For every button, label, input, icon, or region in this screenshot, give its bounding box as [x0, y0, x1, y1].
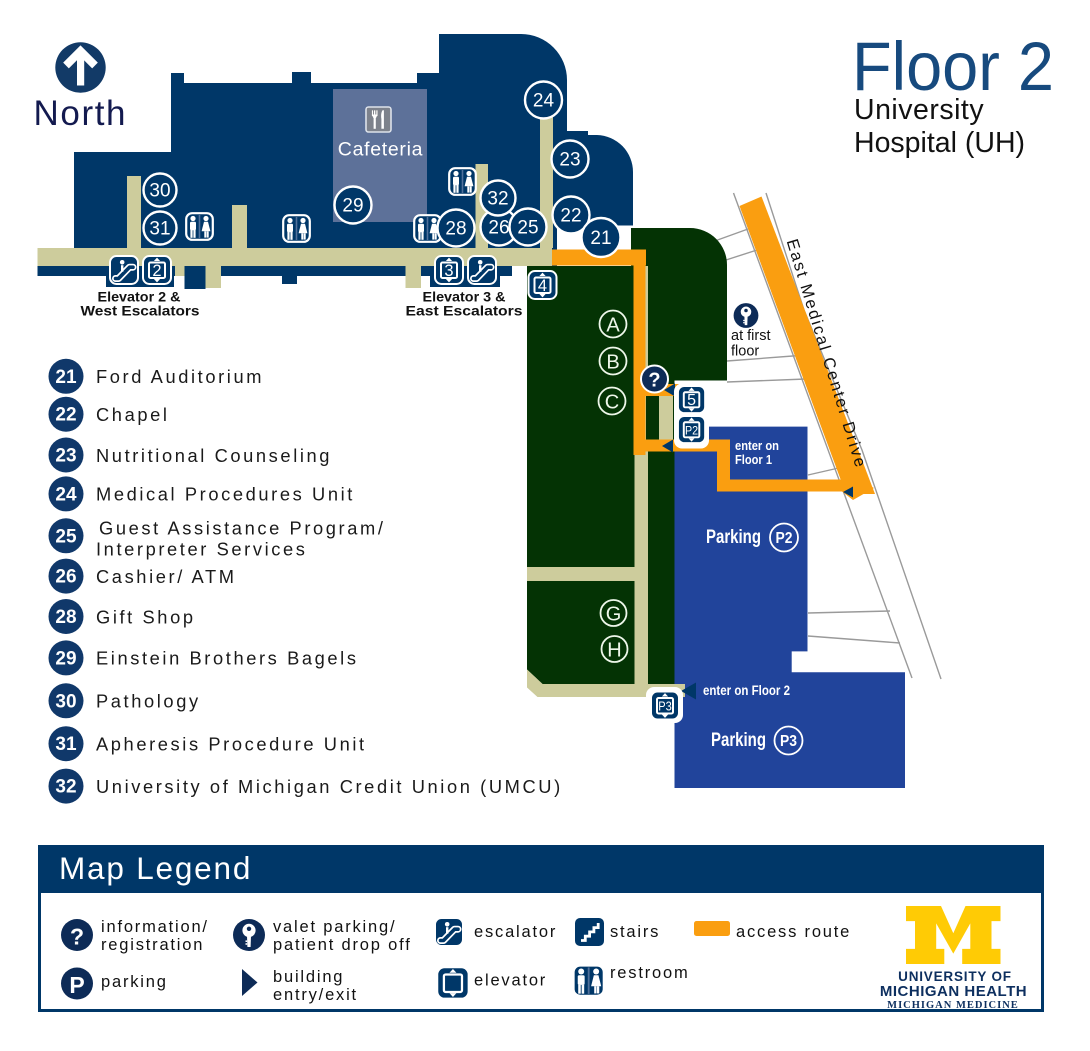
svg-text:30: 30	[149, 181, 170, 202]
svg-text:24: 24	[533, 91, 555, 112]
svg-text:26: 26	[488, 218, 509, 239]
svg-text:P3: P3	[780, 733, 797, 750]
svg-text:Cafeteria: Cafeteria	[338, 139, 423, 161]
svg-text:32: 32	[55, 777, 76, 798]
svg-text:Gift Shop: Gift Shop	[96, 606, 196, 627]
svg-text:24: 24	[55, 484, 77, 505]
svg-text:patient drop off: patient drop off	[273, 936, 412, 954]
svg-text:?: ?	[70, 924, 84, 950]
svg-text:floor: floor	[731, 344, 759, 360]
svg-text:Medical Procedures Unit: Medical Procedures Unit	[96, 484, 355, 505]
svg-text:25: 25	[55, 526, 77, 547]
svg-text:Hospital (UH): Hospital (UH)	[854, 127, 1025, 159]
svg-text:West Escalators: West Escalators	[81, 303, 200, 319]
svg-text:registration: registration	[101, 936, 204, 954]
svg-text:entry/exit: entry/exit	[273, 986, 358, 1004]
svg-text:North: North	[34, 94, 128, 133]
svg-text:2: 2	[152, 262, 161, 280]
svg-text:MICHIGAN MEDICINE: MICHIGAN MEDICINE	[887, 1000, 1019, 1011]
svg-text:P2: P2	[776, 530, 793, 547]
svg-text:?: ?	[648, 370, 660, 392]
svg-text:East Escalators: East Escalators	[406, 303, 523, 319]
svg-text:22: 22	[55, 405, 76, 426]
svg-text:valet parking/: valet parking/	[273, 918, 396, 936]
svg-text:25: 25	[517, 218, 538, 239]
svg-text:Pathology: Pathology	[96, 691, 201, 712]
svg-text:building: building	[273, 968, 344, 986]
svg-text:A: A	[606, 315, 620, 337]
svg-text:P2: P2	[685, 424, 698, 438]
svg-text:30: 30	[55, 691, 76, 712]
svg-text:H: H	[607, 640, 621, 662]
svg-text:31: 31	[149, 219, 170, 240]
svg-text:22: 22	[560, 206, 581, 227]
svg-text:at first: at first	[731, 328, 770, 344]
svg-text:restroom: restroom	[610, 964, 690, 982]
svg-text:23: 23	[559, 150, 580, 171]
svg-text:5: 5	[687, 392, 696, 409]
svg-text:Map Legend: Map Legend	[59, 850, 252, 886]
svg-text:P: P	[69, 972, 84, 998]
svg-text:B: B	[606, 352, 619, 374]
svg-text:stairs: stairs	[610, 923, 660, 941]
svg-text:Parking: Parking	[706, 527, 761, 548]
svg-text:escalator: escalator	[474, 923, 557, 941]
svg-text:Nutritional Counseling: Nutritional Counseling	[96, 445, 332, 466]
svg-text:Apheresis Procedure Unit: Apheresis Procedure Unit	[96, 734, 367, 755]
svg-text:University of Michigan Credit: University of Michigan Credit Union (UMC…	[96, 776, 563, 797]
svg-text:University: University	[854, 94, 984, 126]
svg-text:28: 28	[55, 607, 76, 628]
svg-text:29: 29	[55, 648, 76, 669]
svg-text:C: C	[605, 392, 619, 414]
svg-text:3: 3	[444, 262, 453, 280]
svg-text:4: 4	[538, 277, 547, 295]
svg-text:26: 26	[55, 567, 76, 588]
svg-text:P3: P3	[658, 700, 672, 714]
svg-text:Guest Assistance Program/: Guest Assistance Program/	[99, 517, 386, 538]
svg-text:23: 23	[55, 446, 76, 467]
svg-text:G: G	[606, 604, 622, 626]
svg-text:UNIVERSITY OF: UNIVERSITY OF	[898, 969, 1012, 984]
svg-text:elevator: elevator	[474, 972, 547, 990]
svg-text:Parking: Parking	[711, 730, 766, 751]
svg-text:access route: access route	[736, 923, 851, 941]
svg-text:Ford Auditorium: Ford Auditorium	[96, 366, 264, 387]
svg-text:Chapel: Chapel	[96, 404, 170, 425]
svg-text:21: 21	[590, 228, 611, 249]
svg-text:21: 21	[55, 367, 77, 388]
svg-text:Interpreter Services: Interpreter Services	[96, 538, 308, 559]
svg-text:enter on Floor 2: enter on Floor 2	[703, 683, 790, 698]
svg-text:31: 31	[55, 734, 77, 755]
svg-text:29: 29	[342, 196, 363, 217]
svg-text:Floor 1: Floor 1	[735, 453, 772, 467]
svg-text:parking: parking	[101, 973, 168, 991]
svg-text:Cashier/ ATM: Cashier/ ATM	[96, 566, 237, 587]
svg-text:information/: information/	[101, 918, 209, 936]
svg-text:Einstein Brothers Bagels: Einstein Brothers Bagels	[96, 648, 359, 669]
svg-text:enter on: enter on	[735, 439, 779, 453]
svg-text:32: 32	[487, 189, 508, 210]
svg-text:28: 28	[445, 219, 466, 240]
svg-text:MICHIGAN HEALTH: MICHIGAN HEALTH	[880, 983, 1027, 1000]
